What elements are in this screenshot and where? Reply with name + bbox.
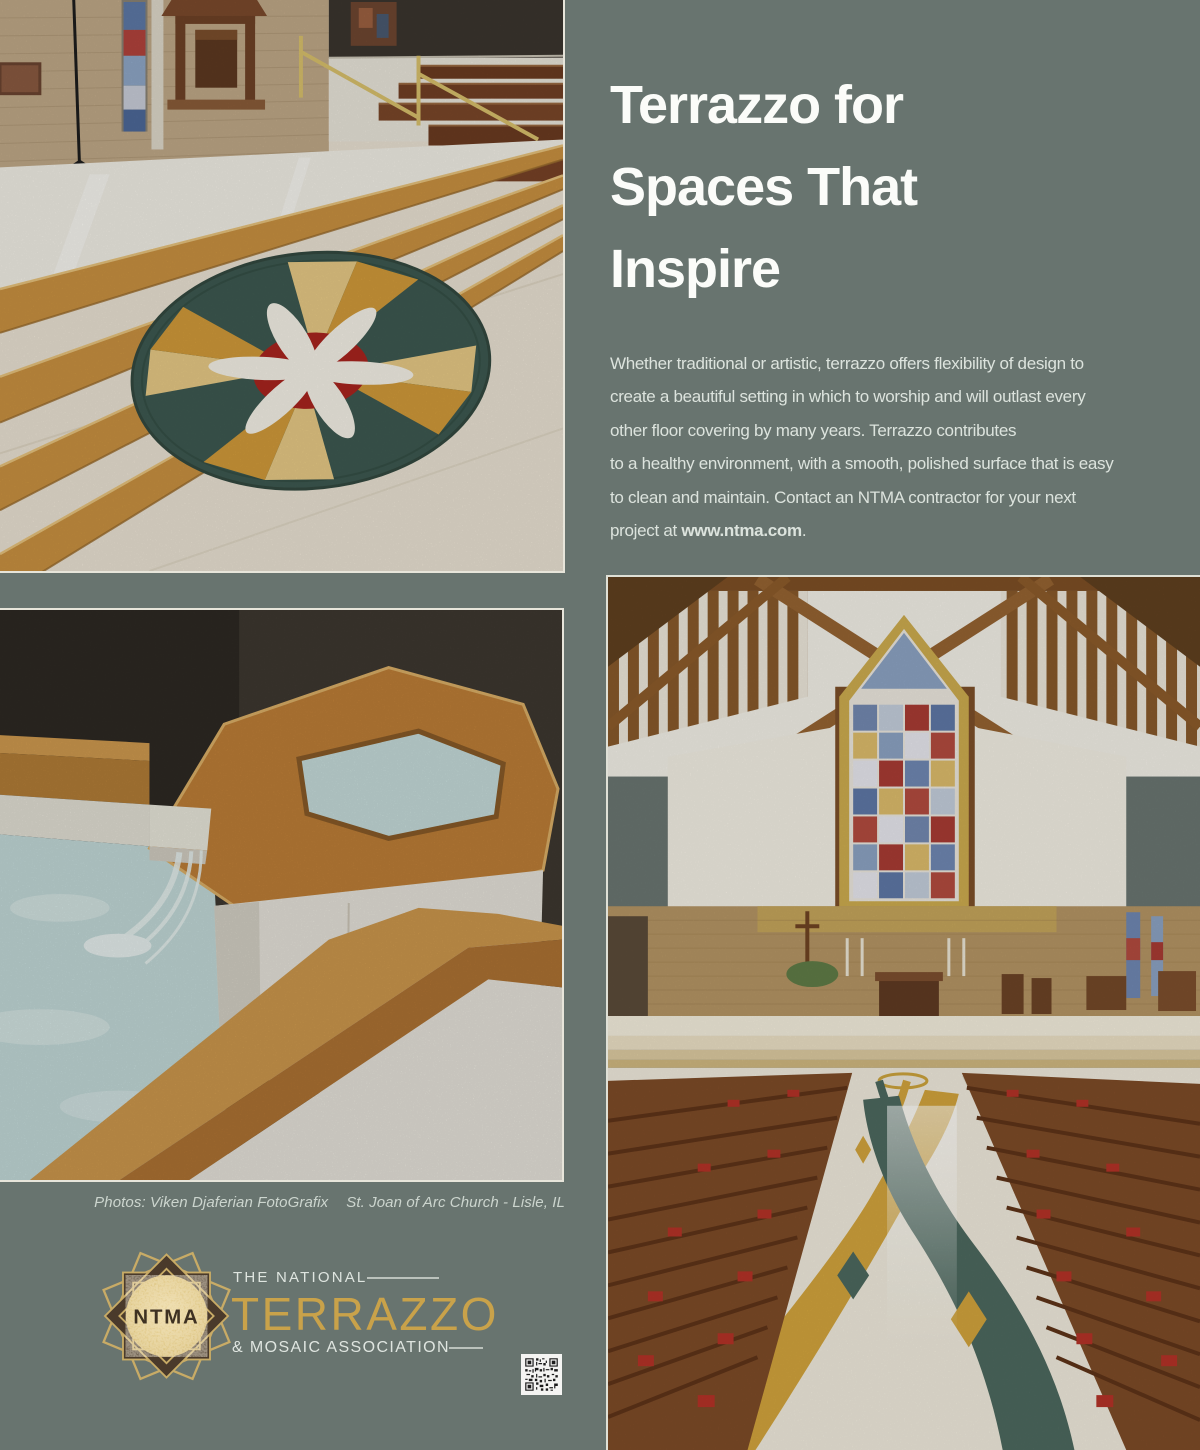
logo-rule-top [367, 1277, 439, 1279]
logo-tagline-bottom: & MOSAIC ASSOCIATION [232, 1339, 450, 1357]
body-line: other floor covering by many years. Terr… [610, 414, 1200, 447]
headline-line-1: Terrazzo for [610, 64, 1190, 146]
ntma-star-icon: NTMA [85, 1241, 248, 1391]
closing-prefix: project at [610, 521, 681, 540]
body-line: to clean and maintain. Contact an NTMA c… [610, 481, 1200, 514]
logo-wordmark: TERRAZZO [231, 1287, 499, 1341]
ntma-logo: NTMA THE NATIONAL TERRAZZO & MOSAIC ASSO… [85, 1233, 585, 1403]
logo-tagline-top: THE NATIONAL [233, 1269, 367, 1286]
photo-credit: Photos: Viken Djaferian FotoGrafix [94, 1194, 328, 1211]
church-location: St. Joan of Arc Church - Lisle, IL [346, 1194, 565, 1211]
photo-baptismal-font [0, 608, 564, 1182]
page-title: Terrazzo for Spaces That Inspire [610, 64, 1190, 310]
photo-nave-aisle [606, 575, 1200, 1450]
qr-code [521, 1354, 562, 1395]
logo-rule-bottom [449, 1347, 483, 1349]
sanctuary-illustration [0, 0, 563, 571]
closing-suffix: . [802, 521, 806, 540]
ntma-monogram: NTMA [133, 1306, 199, 1328]
magazine-ad-page: Terrazzo for Spaces That Inspire Whether… [0, 0, 1200, 1450]
body-line: Whether traditional or artistic, terrazz… [610, 347, 1200, 380]
body-line: to a healthy environment, with a smooth,… [610, 447, 1200, 480]
font-illustration [0, 610, 562, 1180]
photo-caption: Photos: Viken Djaferian FotoGrafixSt. Jo… [0, 1194, 565, 1211]
body-copy: Whether traditional or artistic, terrazz… [610, 347, 1200, 547]
headline-line-3: Inspire [610, 228, 1190, 310]
body-line: create a beautiful setting in which to w… [610, 380, 1200, 413]
body-closing-line: project at www.ntma.com. [610, 514, 1200, 547]
photo-sanctuary-medallion [0, 0, 565, 573]
headline-line-2: Spaces That [610, 146, 1190, 228]
website-link[interactable]: www.ntma.com [681, 521, 801, 540]
qr-code-icon [524, 1357, 559, 1392]
nave-illustration [608, 577, 1200, 1450]
